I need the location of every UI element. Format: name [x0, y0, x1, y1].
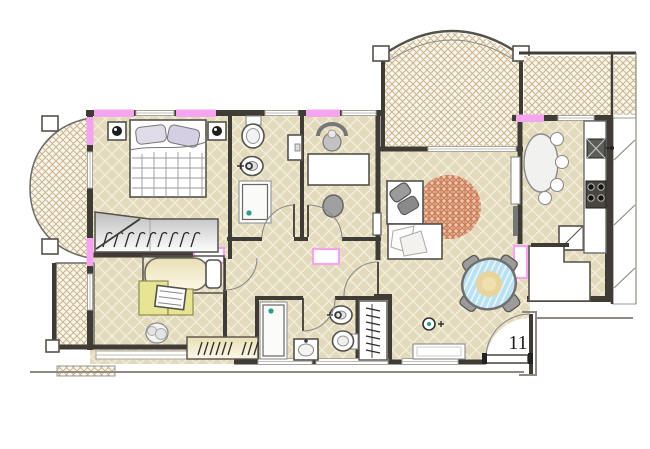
kitchen-chair-icon: [551, 133, 564, 146]
window-marker: [516, 115, 544, 123]
entrance-door-leaf: [486, 355, 528, 363]
lamp-icon: [212, 126, 222, 136]
window-marker: [94, 110, 134, 118]
kitchen-chair-icon: [551, 179, 564, 192]
radiator-icon: [373, 213, 381, 235]
balcony-curved: [30, 116, 90, 258]
pillow: [206, 260, 221, 288]
balcony-post: [373, 46, 389, 61]
cabinet-strip: [513, 206, 518, 236]
balcony-post: [46, 340, 59, 352]
pillow: [135, 124, 167, 145]
window-marker: [176, 110, 216, 118]
tv-cabinet: [511, 157, 520, 204]
doormat: [413, 344, 465, 359]
balcony-arched: [373, 31, 529, 149]
stove-icon: [586, 181, 606, 208]
balcony-post: [42, 116, 58, 131]
kitchen-chair-icon: [556, 156, 569, 169]
balcony-post: [42, 239, 58, 254]
hallway: [187, 337, 258, 359]
shower-icon: [260, 302, 287, 359]
door-frame-marker: [313, 249, 339, 264]
window-marker: [87, 238, 94, 266]
unit-number: 11: [508, 332, 527, 354]
drain-icon: [246, 210, 251, 215]
floor-plan-page: 11: [0, 0, 650, 449]
kitchen-chair-icon: [539, 192, 552, 205]
drawing-board: [155, 285, 186, 309]
window-marker: [87, 117, 94, 145]
counter-shelf: [531, 243, 569, 247]
floor-plan-canvas: 11: [0, 0, 650, 449]
lamp-icon: [112, 126, 122, 136]
coat-rack: [187, 337, 258, 359]
door-hinge: [528, 353, 533, 364]
dining-set: [455, 251, 523, 316]
door-hinge: [482, 353, 487, 364]
balcony-service: [519, 53, 636, 115]
toilet-icon: [333, 331, 359, 351]
drain-icon: [268, 308, 273, 313]
shower-icon: [239, 181, 271, 223]
washbasin-icon: [294, 339, 318, 360]
landing-outline: [519, 312, 633, 375]
window-marker: [306, 110, 340, 118]
closet: [359, 301, 387, 360]
desk: [308, 154, 369, 185]
